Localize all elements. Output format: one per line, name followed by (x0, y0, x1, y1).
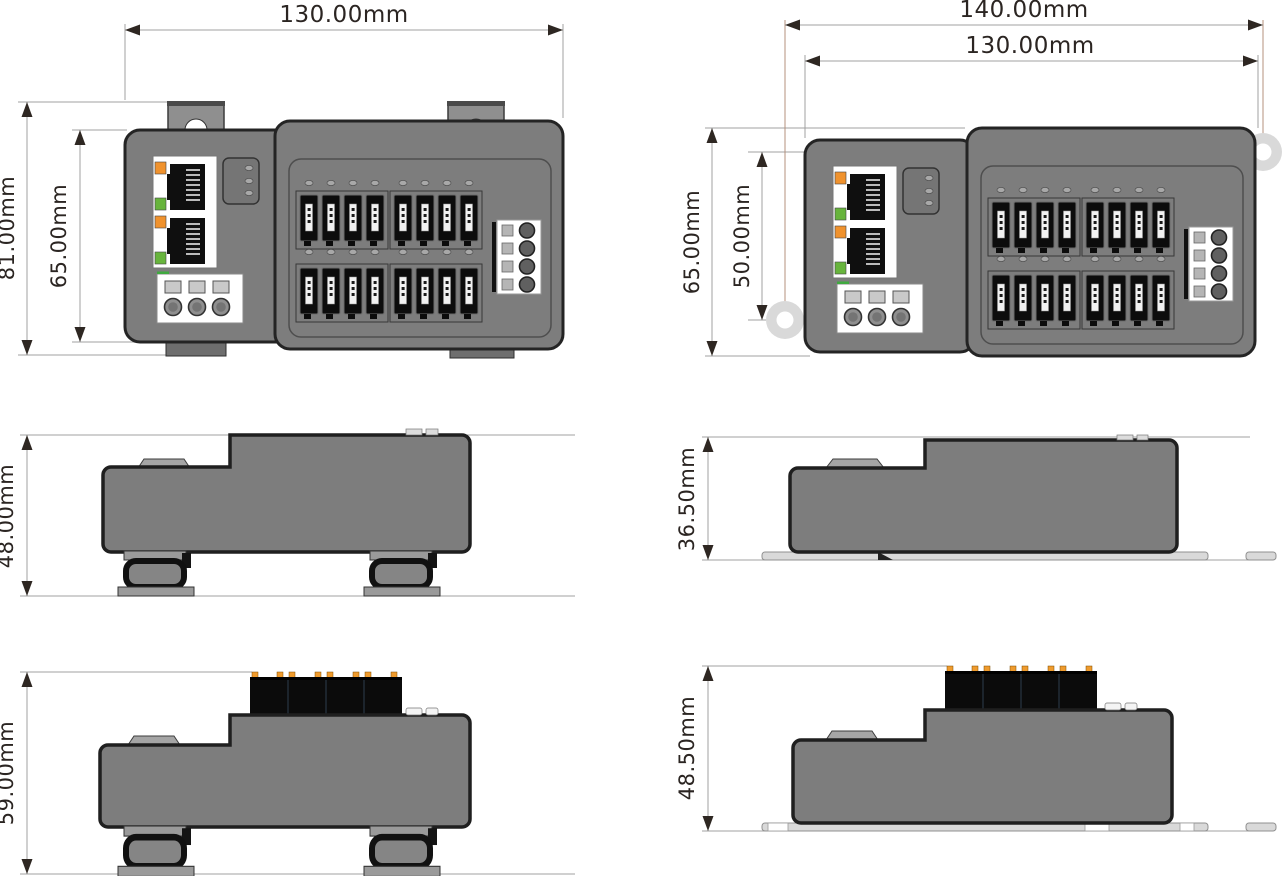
wiring-connector-block (945, 666, 1097, 710)
terminal-connector-side (406, 708, 422, 715)
dimension-height: 48.50mm (675, 666, 714, 831)
terminal-connector-side (1117, 435, 1133, 440)
mounting-base-plate (1246, 823, 1276, 831)
mounting-foot (768, 823, 788, 831)
device-body-side (790, 440, 1177, 552)
terminal-connector-side (426, 708, 438, 715)
terminal-connector-side (406, 429, 422, 435)
view-front-wall: 140.00mm 130.00mm 65.00mm 50.00mm (680, 0, 1282, 356)
dimension-drawing: 130.00mm 81.00mm 65.00mm (0, 0, 1282, 876)
din-rail-clip (118, 551, 194, 596)
din-rail-clip (364, 551, 440, 596)
dimension-label: 65.00mm (47, 184, 71, 289)
din-rail-clip (118, 826, 194, 876)
view-side-din: 48.00mm (0, 429, 575, 596)
controller-section (125, 130, 295, 342)
terminal-connector-side (426, 429, 438, 435)
dimension-label: 48.50mm (675, 696, 699, 801)
dimension-outer-width: 140.00mm (785, 0, 1263, 31)
dimension-label: 59.00mm (0, 721, 18, 826)
dimension-inner-width: 130.00mm (805, 33, 1258, 67)
view-side-din-connectors: 59.00mm (0, 672, 575, 876)
dimension-outer-height: 81.00mm (0, 102, 33, 355)
dimension-width: 130.00mm (125, 2, 563, 36)
view-side-wall-connectors: 48.50mm (675, 666, 1276, 831)
dimension-height: 36.50mm (675, 437, 714, 560)
wiring-connector-block (250, 672, 402, 716)
terminal-connector-side (1137, 435, 1148, 440)
dimension-label: 50.00mm (730, 184, 754, 289)
dimension-label: 130.00mm (279, 2, 408, 28)
io-section (967, 128, 1255, 356)
view-side-wall: 36.50mm (675, 435, 1276, 560)
io-section (275, 121, 563, 349)
controller-section (805, 140, 975, 352)
device-body-side (100, 715, 470, 827)
dimension-label: 65.00mm (680, 190, 704, 295)
mounting-foot (1180, 823, 1194, 831)
drawing-canvas: 130.00mm 81.00mm 65.00mm (0, 0, 1282, 876)
dimension-inner-height: 65.00mm (47, 130, 86, 342)
dimension-label: 48.00mm (0, 464, 18, 569)
dimension-label: 140.00mm (959, 0, 1088, 23)
terminal-connector-side (1105, 703, 1121, 710)
terminal-connector-side (1125, 703, 1137, 710)
din-rail-tab (166, 342, 226, 356)
dimension-label: 36.50mm (675, 447, 699, 552)
dimension-label: 130.00mm (965, 33, 1094, 59)
dimension-outer-height: 65.00mm (680, 128, 718, 356)
dimension-height: 59.00mm (0, 672, 33, 874)
dimension-inner-height: 50.00mm (730, 152, 768, 320)
view-front-din: 130.00mm 81.00mm 65.00mm (0, 2, 563, 358)
device-body-side (103, 435, 470, 552)
mounting-base-plate (1246, 552, 1276, 560)
din-rail-clip (364, 826, 440, 876)
dimension-height: 48.00mm (0, 435, 33, 596)
dimension-label: 81.00mm (0, 176, 19, 281)
device-body-side (793, 710, 1172, 823)
